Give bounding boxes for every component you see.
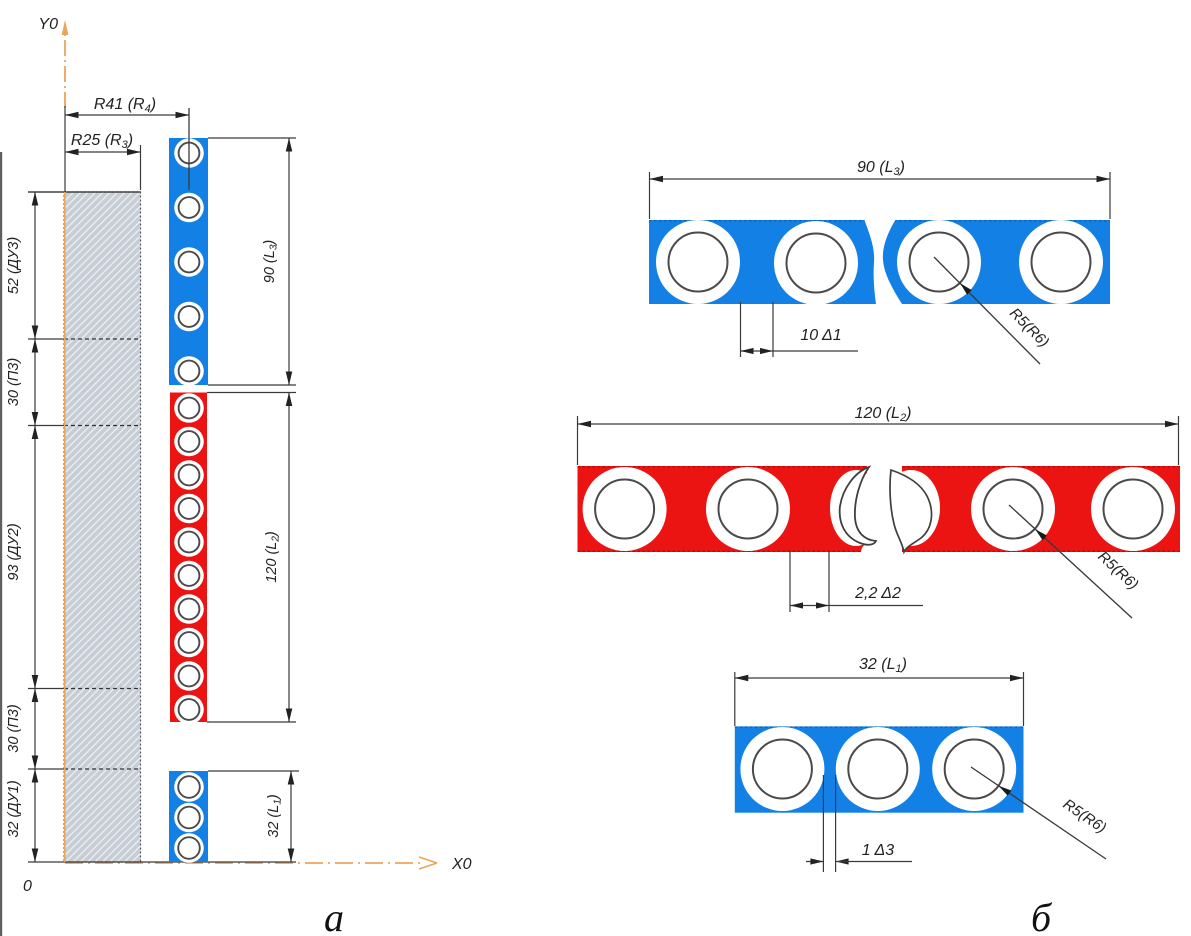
svg-text:б: б xyxy=(1031,895,1053,936)
svg-text:10 Δ1: 10 Δ1 xyxy=(800,327,841,344)
svg-text:2,2 Δ2: 2,2 Δ2 xyxy=(854,585,901,602)
svg-text:52 (ДУ3): 52 (ДУ3) xyxy=(6,237,22,294)
svg-text:93 (ДУ2): 93 (ДУ2) xyxy=(6,523,22,580)
svg-text:1 Δ3: 1 Δ3 xyxy=(862,842,894,859)
svg-text:X0: X0 xyxy=(451,856,472,873)
svg-text:32 (ДУ1): 32 (ДУ1) xyxy=(6,780,22,837)
svg-text:0: 0 xyxy=(23,878,32,895)
svg-text:а: а xyxy=(324,895,344,936)
svg-text:30 (П3): 30 (П3) xyxy=(6,358,22,406)
svg-text:Y0: Y0 xyxy=(38,16,58,33)
svg-text:30 (П3): 30 (П3) xyxy=(6,704,22,752)
